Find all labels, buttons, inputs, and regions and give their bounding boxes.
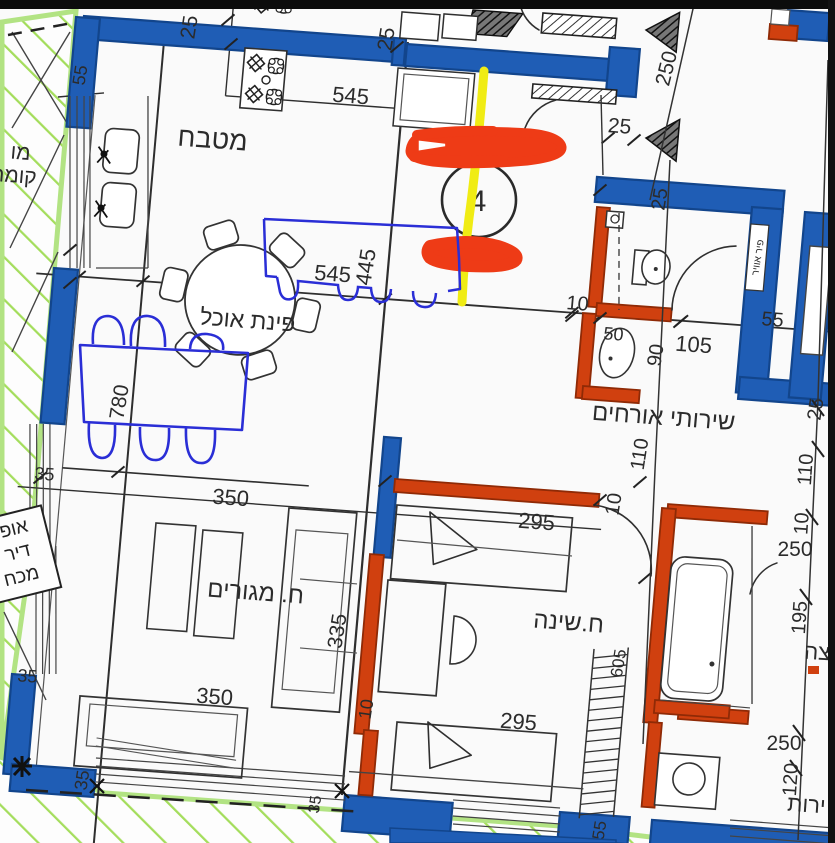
svg-text:25: 25 bbox=[803, 397, 828, 422]
svg-text:55: 55 bbox=[761, 308, 785, 332]
svg-text:25: 25 bbox=[607, 114, 632, 139]
svg-text:35: 35 bbox=[17, 665, 39, 686]
svg-text:מו: מו bbox=[10, 141, 32, 165]
svg-text:10: 10 bbox=[355, 698, 378, 721]
svg-text:105: 105 bbox=[674, 331, 713, 359]
svg-text:מטבח: מטבח bbox=[177, 122, 249, 157]
svg-text:250: 250 bbox=[766, 732, 801, 755]
svg-text:50: 50 bbox=[603, 323, 625, 344]
svg-text:35: 35 bbox=[34, 463, 56, 484]
svg-text:195: 195 bbox=[788, 600, 812, 635]
svg-text:35: 35 bbox=[306, 794, 326, 814]
svg-text:55: 55 bbox=[69, 64, 92, 87]
svg-text:295: 295 bbox=[499, 708, 538, 736]
svg-text:350: 350 bbox=[211, 484, 250, 512]
svg-text:545: 545 bbox=[331, 82, 370, 110]
svg-text:ח.שינה: ח.שינה bbox=[532, 607, 605, 639]
svg-text:10: 10 bbox=[601, 492, 626, 517]
svg-text:350: 350 bbox=[195, 683, 234, 711]
svg-text:25: 25 bbox=[176, 14, 202, 40]
svg-text:10: 10 bbox=[790, 512, 813, 536]
svg-text:10: 10 bbox=[565, 292, 589, 316]
svg-text:ירות: ירות bbox=[787, 791, 827, 819]
svg-text:25: 25 bbox=[373, 26, 399, 52]
svg-text:295: 295 bbox=[517, 508, 556, 536]
svg-text:קומת: קומת bbox=[0, 163, 38, 189]
svg-text:55: 55 bbox=[589, 819, 611, 840]
svg-text:110: 110 bbox=[794, 453, 818, 486]
svg-text:250: 250 bbox=[777, 538, 812, 561]
svg-text:90: 90 bbox=[643, 343, 668, 368]
